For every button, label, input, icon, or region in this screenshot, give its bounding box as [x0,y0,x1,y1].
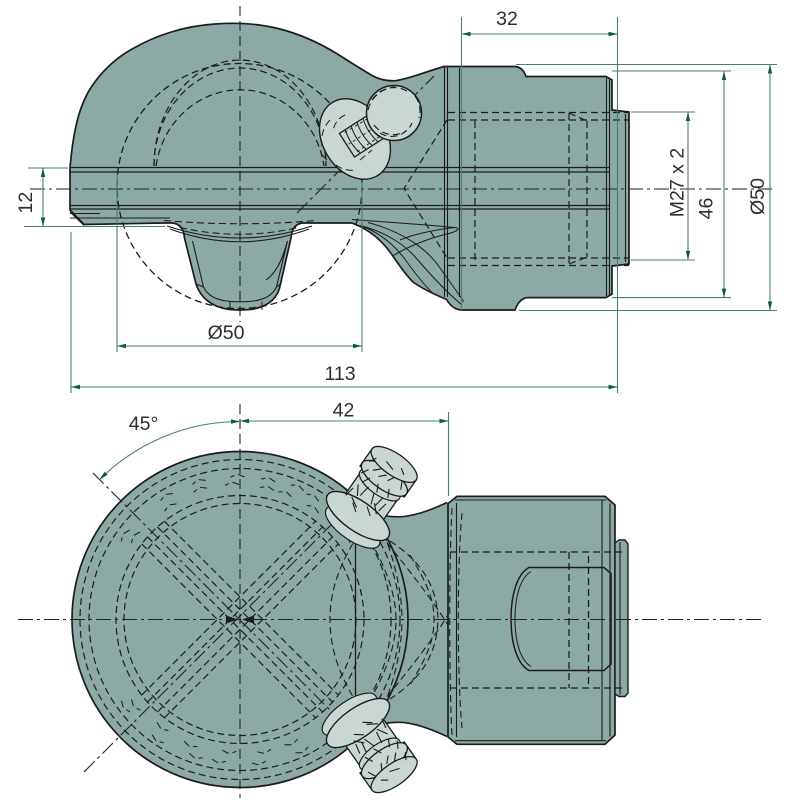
svg-text:Ø50: Ø50 [208,322,245,344]
svg-text:42: 42 [333,400,355,422]
svg-text:113: 113 [324,363,355,385]
svg-text:45°: 45° [129,413,159,435]
svg-text:12: 12 [15,192,37,214]
svg-text:Ø50: Ø50 [747,178,769,215]
svg-text:M27 x 2: M27 x 2 [667,148,689,217]
svg-text:32: 32 [496,8,518,30]
svg-text:46: 46 [696,198,718,220]
